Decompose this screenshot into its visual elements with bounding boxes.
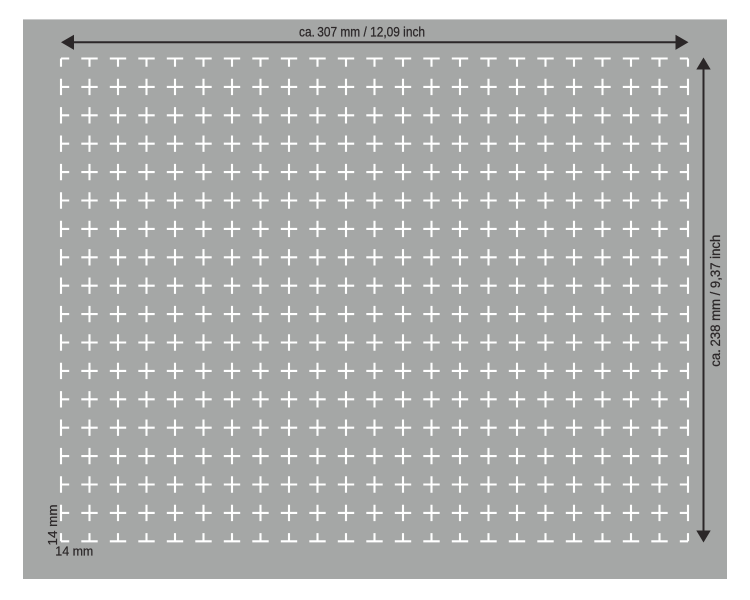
svg-text:14 mm: 14 mm: [55, 544, 93, 559]
svg-text:ca. 238 mm / 9,37 inch: ca. 238 mm / 9,37 inch: [707, 235, 723, 367]
svg-text:ca. 307 mm / 12,09 inch: ca. 307 mm / 12,09 inch: [299, 23, 425, 39]
svg-text:14 mm: 14 mm: [45, 505, 60, 546]
